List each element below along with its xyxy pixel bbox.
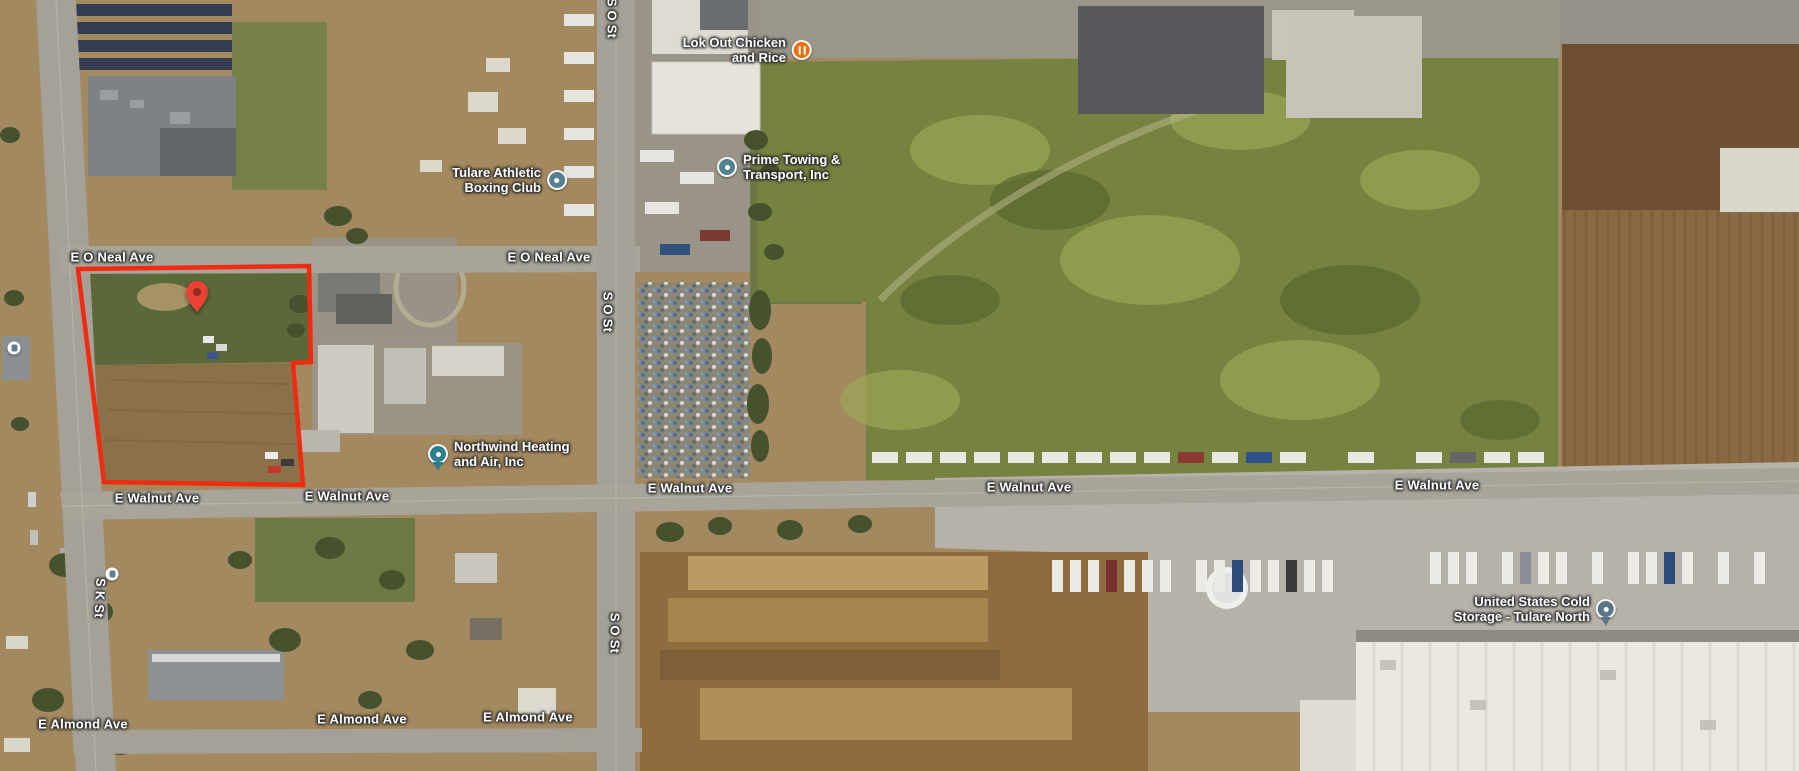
place-lok-out-chicken-and-rice[interactable]: Lok Out Chicken and Rice (683, 35, 812, 65)
road-label-e-almond-ave-2: E Almond Ave (317, 712, 407, 727)
transit-stop-icon[interactable] (8, 342, 21, 355)
road-label-e-o-neal-ave-1: E O Neal Ave (71, 250, 154, 265)
road-label-e-o-neal-ave-2: E O Neal Ave (508, 250, 591, 265)
place-northwind-heating-and-air[interactable]: Northwind Heating and Air, Inc (428, 439, 570, 469)
place-united-states-cold-storage[interactable]: United States Cold Storage - Tulare Nort… (1454, 594, 1616, 624)
poi-circle-icon[interactable] (717, 157, 737, 177)
road-label-s-o-st-1: S O St (605, 0, 620, 38)
restaurant-icon[interactable] (792, 40, 812, 60)
road-label-e-walnut-ave-4: E Walnut Ave (987, 480, 1072, 495)
place-name: Northwind Heating and Air, Inc (454, 439, 570, 469)
road-label-s-o-st-3: S O St (608, 613, 623, 654)
satellite-basemap (0, 0, 1799, 771)
road-label-e-almond-ave-1: E Almond Ave (38, 717, 128, 732)
place-name: United States Cold Storage - Tulare Nort… (1454, 594, 1590, 624)
poi-pin-icon[interactable] (1596, 599, 1616, 619)
road-label-e-walnut-ave-2: E Walnut Ave (305, 489, 390, 504)
road-label-e-walnut-ave-1: E Walnut Ave (115, 491, 200, 506)
place-tulare-athletic-boxing-club[interactable]: Tulare Athletic Boxing Club (452, 165, 567, 195)
road-label-s-o-st-2: S O St (601, 292, 616, 333)
place-name: Lok Out Chicken and Rice (683, 35, 786, 65)
transit-stop-icon[interactable] (106, 568, 119, 581)
poi-pin-icon[interactable] (428, 444, 448, 464)
poi-circle-icon[interactable] (547, 170, 567, 190)
road-label-s-k-st: S K St (91, 578, 108, 619)
place-name: Tulare Athletic Boxing Club (452, 165, 541, 195)
fork-knife-glyph (799, 46, 806, 55)
place-name: Prime Towing & Transport, Inc (743, 152, 840, 182)
place-prime-towing-transport[interactable]: Prime Towing & Transport, Inc (717, 152, 840, 182)
road-label-e-walnut-ave-5: E Walnut Ave (1395, 478, 1480, 493)
property-pin-icon[interactable] (186, 281, 208, 312)
satellite-map-viewport[interactable]: E O Neal Ave E O Neal Ave E Walnut Ave E… (0, 0, 1799, 771)
road-label-e-walnut-ave-3: E Walnut Ave (648, 481, 733, 496)
road-label-e-almond-ave-3: E Almond Ave (483, 710, 573, 725)
